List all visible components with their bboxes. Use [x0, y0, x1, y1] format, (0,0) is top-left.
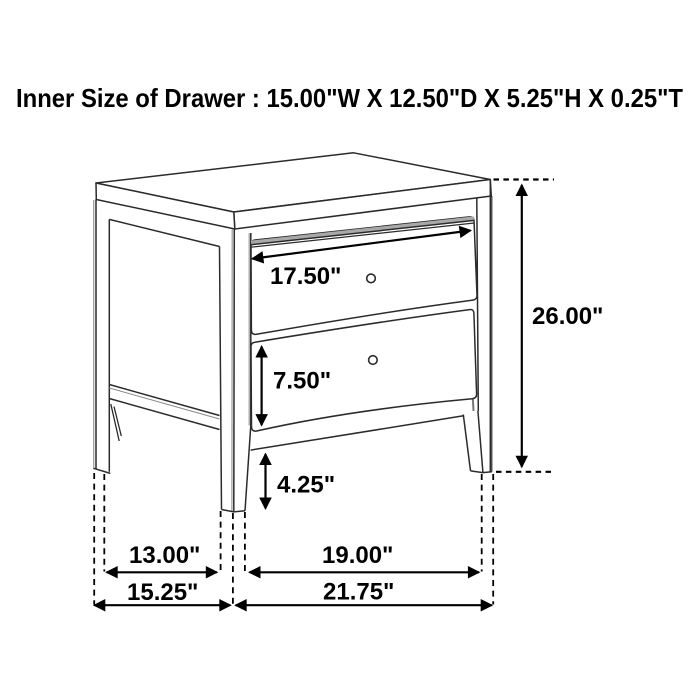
- svg-text:26.00": 26.00": [532, 303, 603, 330]
- svg-text:17.50": 17.50": [270, 263, 341, 290]
- svg-text:15.25": 15.25": [127, 579, 198, 606]
- svg-text:7.50": 7.50": [273, 368, 331, 395]
- svg-text:21.75": 21.75": [323, 579, 394, 606]
- svg-text:Inner Size of Drawer : 15.00"W: Inner Size of Drawer : 15.00"W X 12.50"D…: [16, 83, 683, 113]
- svg-text:4.25": 4.25": [277, 472, 335, 499]
- svg-text:19.00": 19.00": [322, 542, 393, 569]
- svg-text:13.00": 13.00": [129, 542, 200, 569]
